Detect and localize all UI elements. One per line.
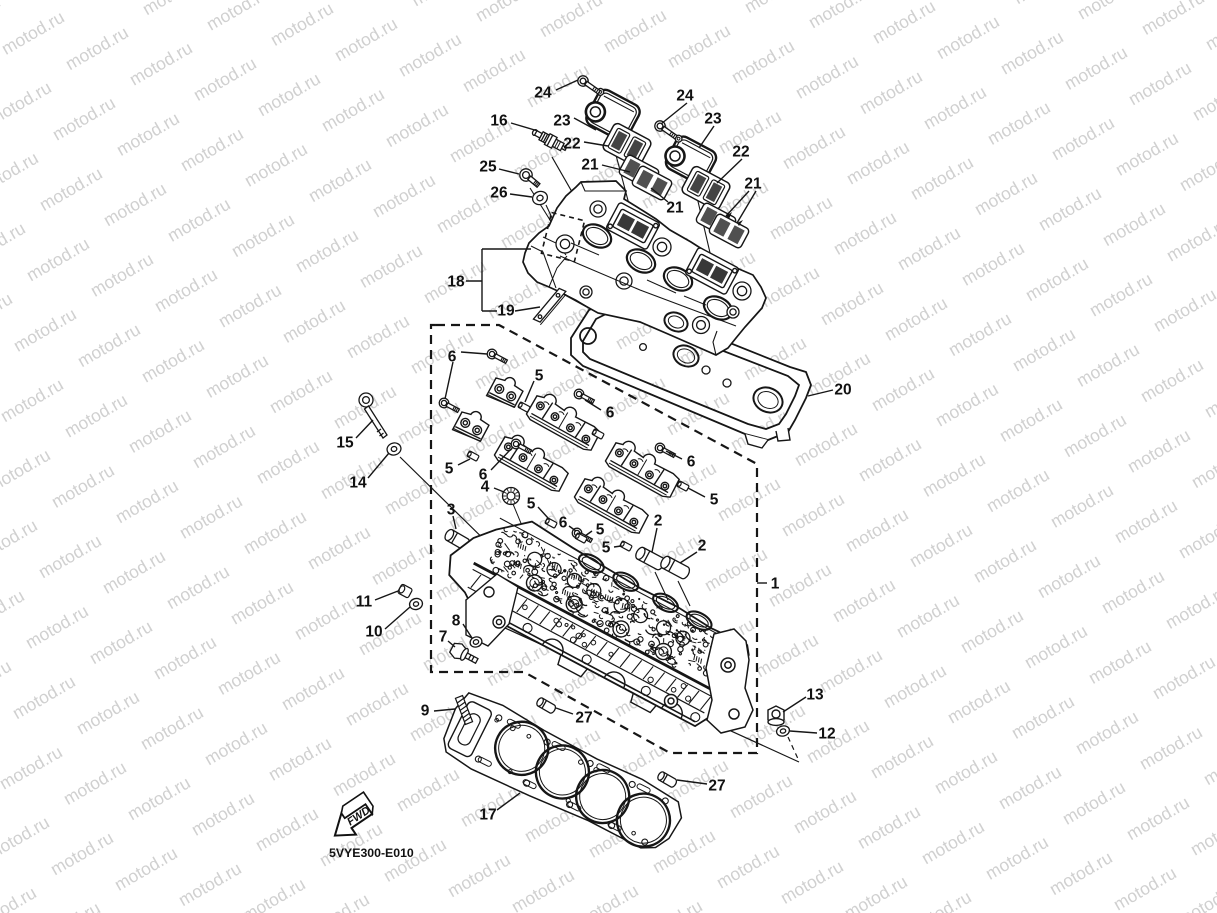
svg-text:2: 2 — [654, 513, 663, 530]
svg-text:19: 19 — [497, 303, 515, 320]
svg-text:27: 27 — [575, 710, 592, 727]
svg-text:16: 16 — [490, 113, 508, 130]
svg-text:7: 7 — [439, 629, 448, 646]
svg-text:10: 10 — [365, 624, 382, 641]
svg-text:26: 26 — [490, 185, 508, 202]
svg-text:2: 2 — [698, 538, 707, 555]
svg-text:1: 1 — [771, 576, 780, 593]
svg-text:25: 25 — [479, 159, 497, 176]
svg-text:20: 20 — [834, 382, 851, 399]
svg-text:15: 15 — [336, 435, 354, 452]
svg-text:27: 27 — [708, 778, 725, 795]
svg-text:5: 5 — [527, 496, 536, 513]
svg-text:5: 5 — [602, 540, 611, 557]
svg-text:4: 4 — [481, 479, 490, 496]
svg-text:24: 24 — [676, 88, 694, 105]
svg-text:17: 17 — [479, 807, 496, 824]
svg-text:5: 5 — [596, 522, 605, 539]
svg-text:11: 11 — [356, 594, 373, 611]
svg-text:3: 3 — [447, 502, 456, 519]
svg-text:9: 9 — [421, 703, 430, 720]
svg-text:21: 21 — [744, 176, 762, 193]
svg-text:23: 23 — [553, 113, 571, 130]
svg-text:8: 8 — [452, 613, 461, 630]
svg-text:18: 18 — [447, 274, 465, 291]
svg-text:5: 5 — [445, 461, 454, 478]
svg-text:22: 22 — [732, 144, 749, 161]
svg-text:6: 6 — [559, 515, 568, 532]
svg-text:5: 5 — [710, 492, 719, 509]
svg-text:13: 13 — [806, 687, 824, 704]
svg-text:5VYE300-E010: 5VYE300-E010 — [329, 846, 414, 860]
svg-text:12: 12 — [818, 726, 835, 743]
svg-text:6: 6 — [606, 405, 615, 422]
svg-text:21: 21 — [581, 157, 599, 174]
svg-text:23: 23 — [704, 111, 722, 128]
svg-text:14: 14 — [349, 475, 367, 492]
svg-text:24: 24 — [534, 85, 552, 102]
svg-text:6: 6 — [687, 454, 696, 471]
svg-text:5: 5 — [535, 368, 544, 385]
svg-text:21: 21 — [666, 200, 684, 217]
svg-text:22: 22 — [563, 136, 580, 153]
